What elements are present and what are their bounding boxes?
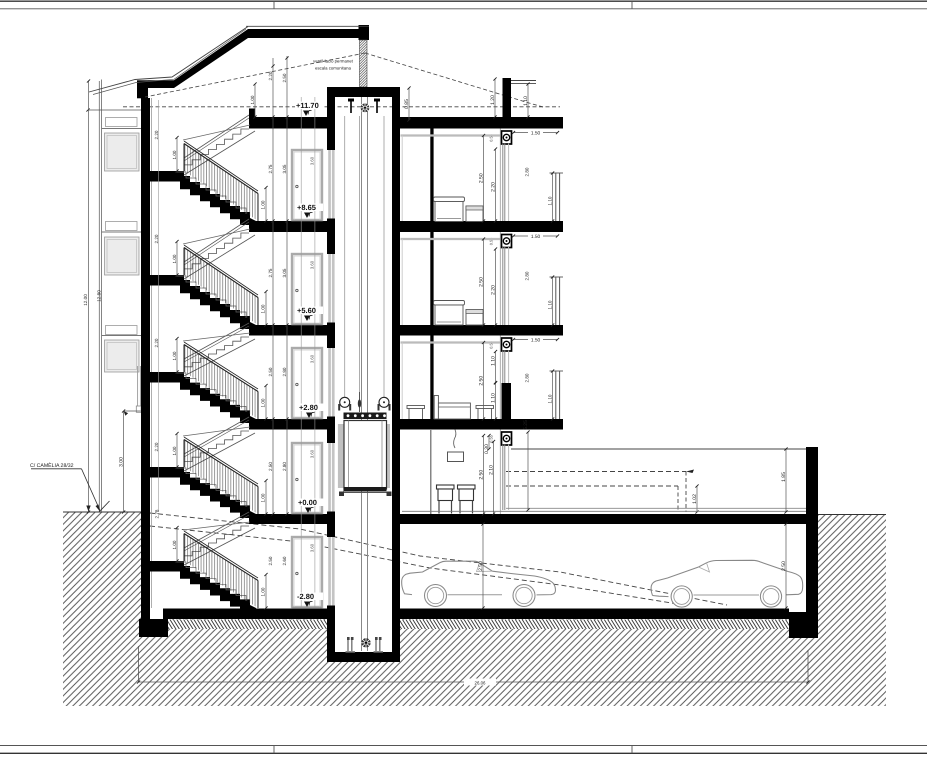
svg-text:2.78: 2.78 xyxy=(155,509,160,518)
svg-text:2.20: 2.20 xyxy=(154,338,159,347)
svg-text:+0.00: +0.00 xyxy=(298,498,317,507)
svg-text:1.00: 1.00 xyxy=(261,200,266,209)
svg-text:+11.70: +11.70 xyxy=(296,101,319,110)
svg-text:+2.80: +2.80 xyxy=(299,403,318,412)
svg-text:1.20: 1.20 xyxy=(490,95,496,105)
svg-text:2.80: 2.80 xyxy=(525,167,530,176)
svg-text:2.20: 2.20 xyxy=(154,234,159,243)
svg-text:2.50: 2.50 xyxy=(282,73,287,82)
svg-text:2.75: 2.75 xyxy=(268,268,273,277)
svg-text:1.10: 1.10 xyxy=(523,96,529,106)
svg-text:2.80: 2.80 xyxy=(282,462,287,471)
svg-text:ventil·lació permanet: ventil·lació permanet xyxy=(313,59,353,64)
svg-text:1.00: 1.00 xyxy=(250,95,255,104)
svg-text:1.50: 1.50 xyxy=(531,130,541,136)
svg-text:2.20: 2.20 xyxy=(154,442,159,451)
svg-text:26.06: 26.06 xyxy=(475,681,487,686)
svg-text:1.00: 1.00 xyxy=(172,446,177,455)
svg-text:3.60: 3.60 xyxy=(309,354,314,363)
svg-text:1.50: 1.50 xyxy=(531,337,541,343)
svg-text:1.00: 1.00 xyxy=(172,540,177,549)
svg-text:2.50: 2.50 xyxy=(781,561,787,571)
svg-text:1.00: 1.00 xyxy=(172,150,177,159)
svg-text:5.25: 5.25 xyxy=(523,420,529,430)
svg-text:3.05: 3.05 xyxy=(282,164,287,173)
svg-text:2.80: 2.80 xyxy=(282,367,287,376)
svg-text:0.30: 0.30 xyxy=(484,444,490,454)
svg-text:12.00: 12.00 xyxy=(83,294,88,306)
svg-text:2.50: 2.50 xyxy=(268,367,273,376)
svg-text:1.00: 1.00 xyxy=(261,304,266,313)
svg-text:3.60: 3.60 xyxy=(309,260,314,269)
svg-text:2.10: 2.10 xyxy=(488,465,494,475)
svg-text:1.02: 1.02 xyxy=(692,494,698,504)
svg-text:1.00: 1.00 xyxy=(261,493,266,502)
svg-text:3.60: 3.60 xyxy=(309,543,314,552)
svg-text:2.60: 2.60 xyxy=(282,556,287,565)
svg-text:1.00: 1.00 xyxy=(172,254,177,263)
svg-text:+5.60: +5.60 xyxy=(297,306,316,315)
svg-text:1.85: 1.85 xyxy=(781,472,787,482)
svg-text:2.50: 2.50 xyxy=(478,173,484,183)
svg-text:1.00: 1.00 xyxy=(261,398,266,407)
svg-text:1.00: 1.00 xyxy=(172,351,177,360)
svg-text:3.60: 3.60 xyxy=(309,156,314,165)
svg-text:1.00: 1.00 xyxy=(261,587,266,596)
svg-text:1.50: 1.50 xyxy=(531,234,541,240)
svg-text:2.20: 2.20 xyxy=(154,130,159,139)
svg-text:2.50: 2.50 xyxy=(268,462,273,471)
svg-text:1.10: 1.10 xyxy=(547,300,552,309)
svg-text:1.10: 1.10 xyxy=(490,393,496,403)
svg-text:3.60: 3.60 xyxy=(309,449,314,458)
svg-text:0.85: 0.85 xyxy=(404,99,410,109)
svg-text:2.80: 2.80 xyxy=(525,373,530,382)
svg-text:2.80: 2.80 xyxy=(525,271,530,280)
svg-text:2.20: 2.20 xyxy=(490,182,496,192)
svg-text:2.50: 2.50 xyxy=(478,277,484,287)
svg-text:3.00: 3.00 xyxy=(118,457,124,467)
svg-text:1.10: 1.10 xyxy=(490,356,496,366)
svg-text:2.50: 2.50 xyxy=(478,376,484,386)
svg-text:-2.80: -2.80 xyxy=(297,592,314,601)
svg-text:1.10: 1.10 xyxy=(547,394,552,403)
svg-text:2.20: 2.20 xyxy=(268,71,273,80)
svg-text:3.05: 3.05 xyxy=(282,268,287,277)
svg-text:1.10: 1.10 xyxy=(547,196,552,205)
svg-text:2.50: 2.50 xyxy=(478,561,484,571)
svg-text:2.50: 2.50 xyxy=(478,470,484,480)
svg-text:2.20: 2.20 xyxy=(490,285,496,295)
svg-text:2.50: 2.50 xyxy=(268,556,273,565)
svg-text:12.80: 12.80 xyxy=(97,290,102,302)
svg-text:2.75: 2.75 xyxy=(268,164,273,173)
svg-text:+8.65: +8.65 xyxy=(297,203,316,212)
svg-text:C/ CAMÈLIA 28/32: C/ CAMÈLIA 28/32 xyxy=(30,462,74,469)
svg-text:escala comunitana: escala comunitana xyxy=(315,66,351,71)
